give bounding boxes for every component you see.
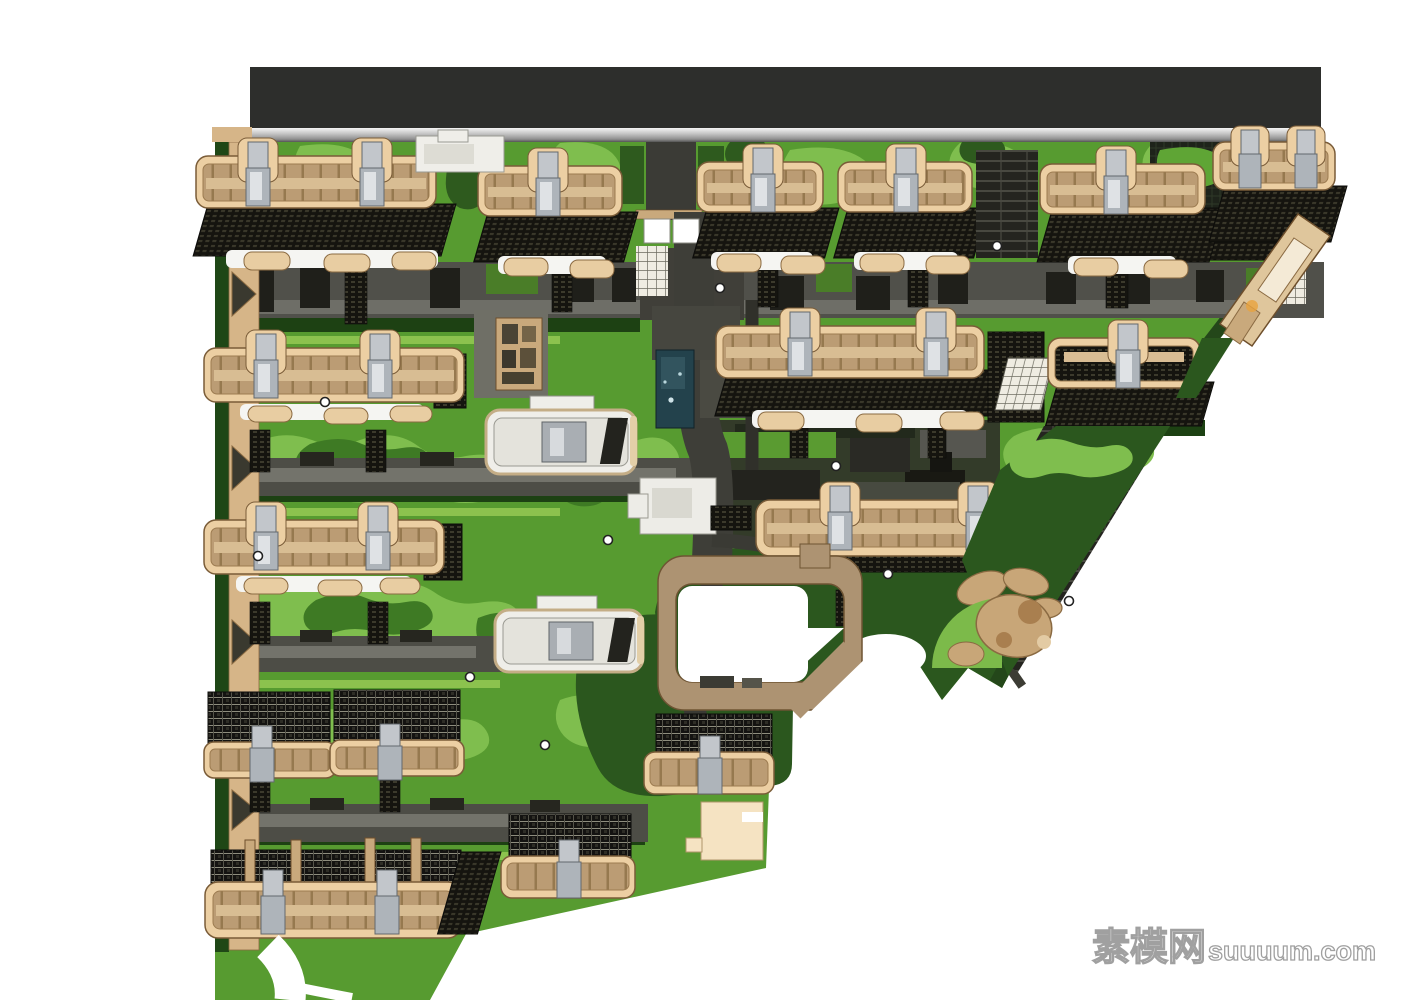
svg-text:素模网: 素模网 [1092,927,1206,969]
svg-text:suuuum.com: suuuum.com [1208,936,1376,966]
